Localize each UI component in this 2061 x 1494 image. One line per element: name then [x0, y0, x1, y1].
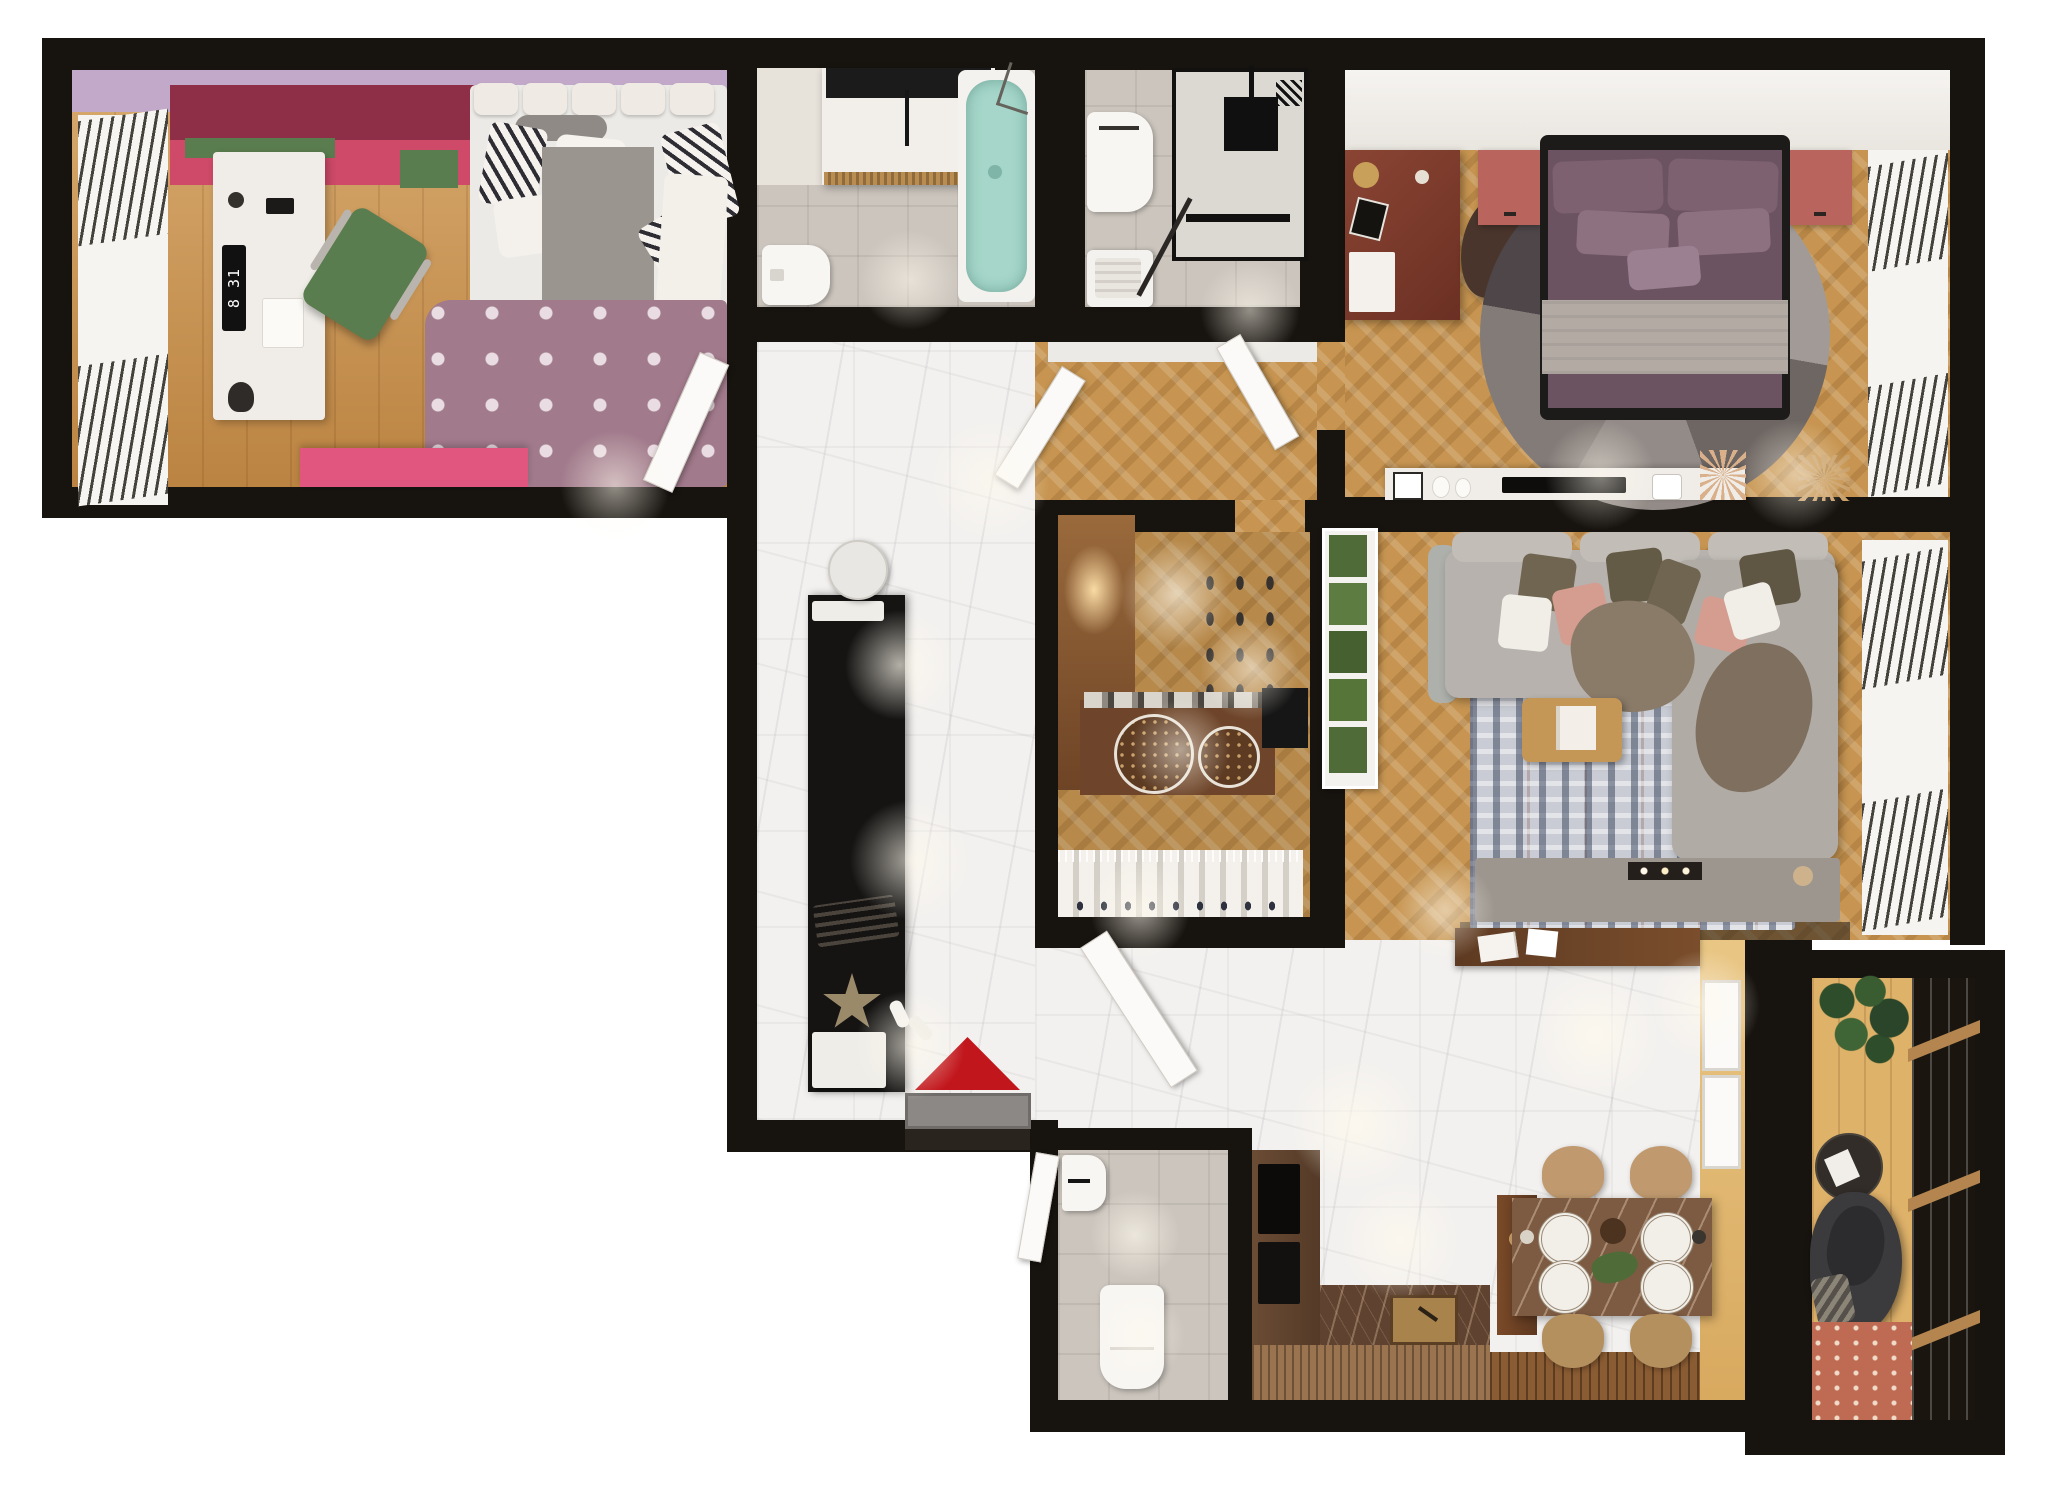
vase: [1432, 476, 1450, 498]
wire-shelf: [1058, 850, 1303, 862]
desk-reading-lamp: [228, 382, 254, 412]
desk-tablet: [1349, 197, 1389, 242]
sink-tap: [1418, 1306, 1438, 1322]
unit-white-drawer: [812, 1032, 886, 1088]
clock-time: 8 31: [225, 268, 243, 308]
living-wood-bench: [1455, 928, 1700, 966]
vanity-faucet: [905, 90, 909, 146]
wc-wall-sink: [1062, 1155, 1106, 1211]
built-in-coffee-machine: [1258, 1242, 1300, 1304]
balcony-rug: [1812, 1322, 1912, 1420]
serving-board: [1600, 1218, 1626, 1244]
shower-cabin: [1172, 68, 1308, 261]
table-magazine: [1824, 1149, 1860, 1187]
bathtub: [958, 70, 1035, 302]
kitchen-tall-cabinet: [1252, 1150, 1320, 1345]
bedroom-doorway-floor: [1317, 342, 1345, 430]
sink-tap: [1068, 1179, 1090, 1183]
living-window-blinds: [1862, 540, 1948, 935]
dining-chair: [1542, 1314, 1604, 1368]
shoes-row: [1068, 898, 1293, 914]
cabinet-lamp-glow: [1064, 545, 1124, 635]
dining-chair: [1542, 1146, 1604, 1200]
place-setting: [1538, 1260, 1592, 1314]
corridor-wall-right: [1317, 430, 1345, 500]
headboard-cushion: [670, 83, 714, 115]
balcony-window-bars: [1908, 995, 1980, 1395]
place-setting: [1538, 1212, 1592, 1266]
dining-window-sash: [1702, 980, 1741, 1071]
kitchen-bar-front: [1252, 1345, 1490, 1400]
blind-slats: [1868, 373, 1948, 497]
dining-balcony-wall: [1745, 940, 1812, 1455]
tv-console: [1475, 858, 1840, 922]
blind-slats: [78, 109, 168, 247]
corridor-threshold: [1048, 342, 1317, 362]
outer-wall-bottom: [1030, 1400, 1790, 1432]
folded-clothes-row: [1084, 692, 1270, 708]
bedroom-window-blinds: [1868, 150, 1948, 497]
nightstand-handle: [1504, 212, 1516, 216]
outer-wall-right: [1950, 38, 1985, 945]
nightstand-left: [1478, 150, 1540, 225]
sofa-pillow-white: [1497, 594, 1552, 653]
closet-doorway-floor: [1235, 500, 1305, 532]
blind-light: [78, 247, 168, 347]
blind-light: [1868, 272, 1948, 372]
vase: [1455, 478, 1471, 498]
toilet-seam: [1110, 1347, 1154, 1350]
round-mirror: [828, 540, 888, 600]
bed-duvet-foot: [1548, 374, 1782, 408]
console-vase: [1793, 866, 1813, 886]
dried-flower-ornament: [1798, 455, 1850, 501]
bathtub-drain: [988, 165, 1002, 179]
table-glass: [1520, 1230, 1534, 1244]
table-greenery: [1588, 1246, 1641, 1289]
laundry-toilet: [1087, 112, 1153, 212]
balcony-plant: [1818, 972, 1913, 1068]
fireplace-insert: [1628, 862, 1702, 880]
window-crossbar: [1908, 1309, 1980, 1353]
plant-box: [1329, 679, 1367, 721]
bed-grey-blanket: [1542, 300, 1788, 374]
woven-basket-small: [1198, 726, 1260, 788]
dining-window-sash: [1702, 1075, 1741, 1169]
plant-box: [1329, 535, 1367, 577]
bathrooms-divider-wall: [1035, 38, 1085, 342]
magazine: [1526, 929, 1559, 958]
vertical-garden-frame: [1322, 528, 1378, 789]
kids-bed: [470, 85, 727, 315]
open-book: [1477, 931, 1518, 962]
white-duvet: [655, 173, 729, 317]
blind-light: [1862, 690, 1948, 786]
nightstand-right: [1790, 150, 1852, 225]
entry-doormat: [905, 1093, 1031, 1129]
coffee-table: [1522, 698, 1622, 762]
shower-head-square: [1224, 97, 1278, 151]
dining-table: [1512, 1198, 1712, 1316]
window-crossbar: [1908, 1169, 1980, 1213]
bed-accent-pillow: [1626, 245, 1701, 291]
plant-box: [1329, 631, 1367, 673]
headboard-cushion: [572, 83, 616, 115]
blind-slats: [78, 354, 168, 507]
bedroom-desk: [1345, 150, 1460, 320]
desk-gold-lamp: [1353, 162, 1379, 188]
washing-machine: [1087, 250, 1153, 307]
wc-toilet: [1100, 1285, 1164, 1389]
closet-console: [1080, 700, 1275, 795]
apartment-floor-plan: 8 31: [0, 0, 2061, 1494]
kids-shelf-green-2: [400, 150, 458, 188]
bed-pillow: [1667, 158, 1779, 214]
wc-wall-right: [1228, 1128, 1252, 1432]
closet-wall-left: [1035, 500, 1058, 948]
decor-clock: [1652, 474, 1682, 500]
wc-wall-top: [1030, 1128, 1252, 1150]
desk-papers: [1349, 252, 1395, 312]
dining-chair: [1630, 1314, 1692, 1368]
photo-frame: [1393, 472, 1423, 500]
desk-lamp: [228, 192, 244, 208]
bathroom-toilet: [762, 245, 830, 305]
digital-clock: 8 31: [222, 245, 246, 331]
balcony-side-table: [1815, 1133, 1883, 1201]
bedroom-media-console: [1385, 468, 1745, 500]
toilet-lid-line: [1099, 126, 1139, 130]
shower-drain-strip: [1186, 214, 1290, 222]
shoe-rack: [1195, 565, 1287, 705]
headboard-cushion: [621, 83, 665, 115]
kids-window-blinds: [78, 115, 168, 505]
hallway-wall-left: [727, 335, 757, 1152]
shower-fixture: [996, 62, 1041, 115]
shower-hanger: [1276, 80, 1302, 106]
dining-chair: [1630, 1146, 1692, 1200]
plant-box: [1329, 727, 1367, 773]
coffee-table-book: [1556, 706, 1596, 750]
hanging-clothes-rail: [1058, 850, 1303, 917]
blind-slats: [1862, 788, 1948, 931]
woven-basket-large: [1114, 714, 1194, 794]
master-bed: [1540, 135, 1790, 420]
dried-flower-ornament: [1700, 450, 1746, 500]
window-crossbar: [1908, 1019, 1980, 1063]
shower-arm: [1249, 66, 1254, 100]
place-setting: [1640, 1260, 1694, 1314]
unit-top-shelf: [812, 601, 884, 621]
desk-tablet: [266, 198, 294, 214]
place-setting: [1640, 1212, 1694, 1266]
blind-slats: [1862, 546, 1948, 689]
tv-soundbar: [1502, 477, 1626, 493]
kitchen-counter: [1320, 1285, 1490, 1345]
closet-black-box: [1262, 688, 1308, 748]
table-glass: [1692, 1230, 1706, 1244]
hall-wardrobe-unit: [808, 595, 905, 1092]
closet-wall-bottom: [1035, 917, 1345, 948]
bathroom-marble-counter: [757, 68, 822, 185]
desk-keyboard: [262, 298, 304, 348]
kitchen-sink: [1390, 1295, 1458, 1345]
blind-slats: [1868, 153, 1948, 272]
balcony-wall-bottom: [1775, 1420, 2005, 1455]
star-decor: [822, 973, 882, 1033]
headboard-cushion: [523, 83, 567, 115]
towel-stack: [1095, 258, 1141, 298]
outer-wall-left: [42, 38, 72, 518]
plant-box: [1329, 583, 1367, 625]
bed-pillow: [1552, 158, 1664, 214]
desk-dish: [1415, 170, 1429, 184]
nightstand-handle: [1814, 212, 1826, 216]
unit-slat-bench: [812, 894, 899, 947]
headboard-cushion: [474, 83, 518, 115]
built-in-oven: [1258, 1164, 1300, 1234]
pink-storage-bench: [300, 448, 528, 487]
toilet-buttons: [770, 269, 784, 281]
